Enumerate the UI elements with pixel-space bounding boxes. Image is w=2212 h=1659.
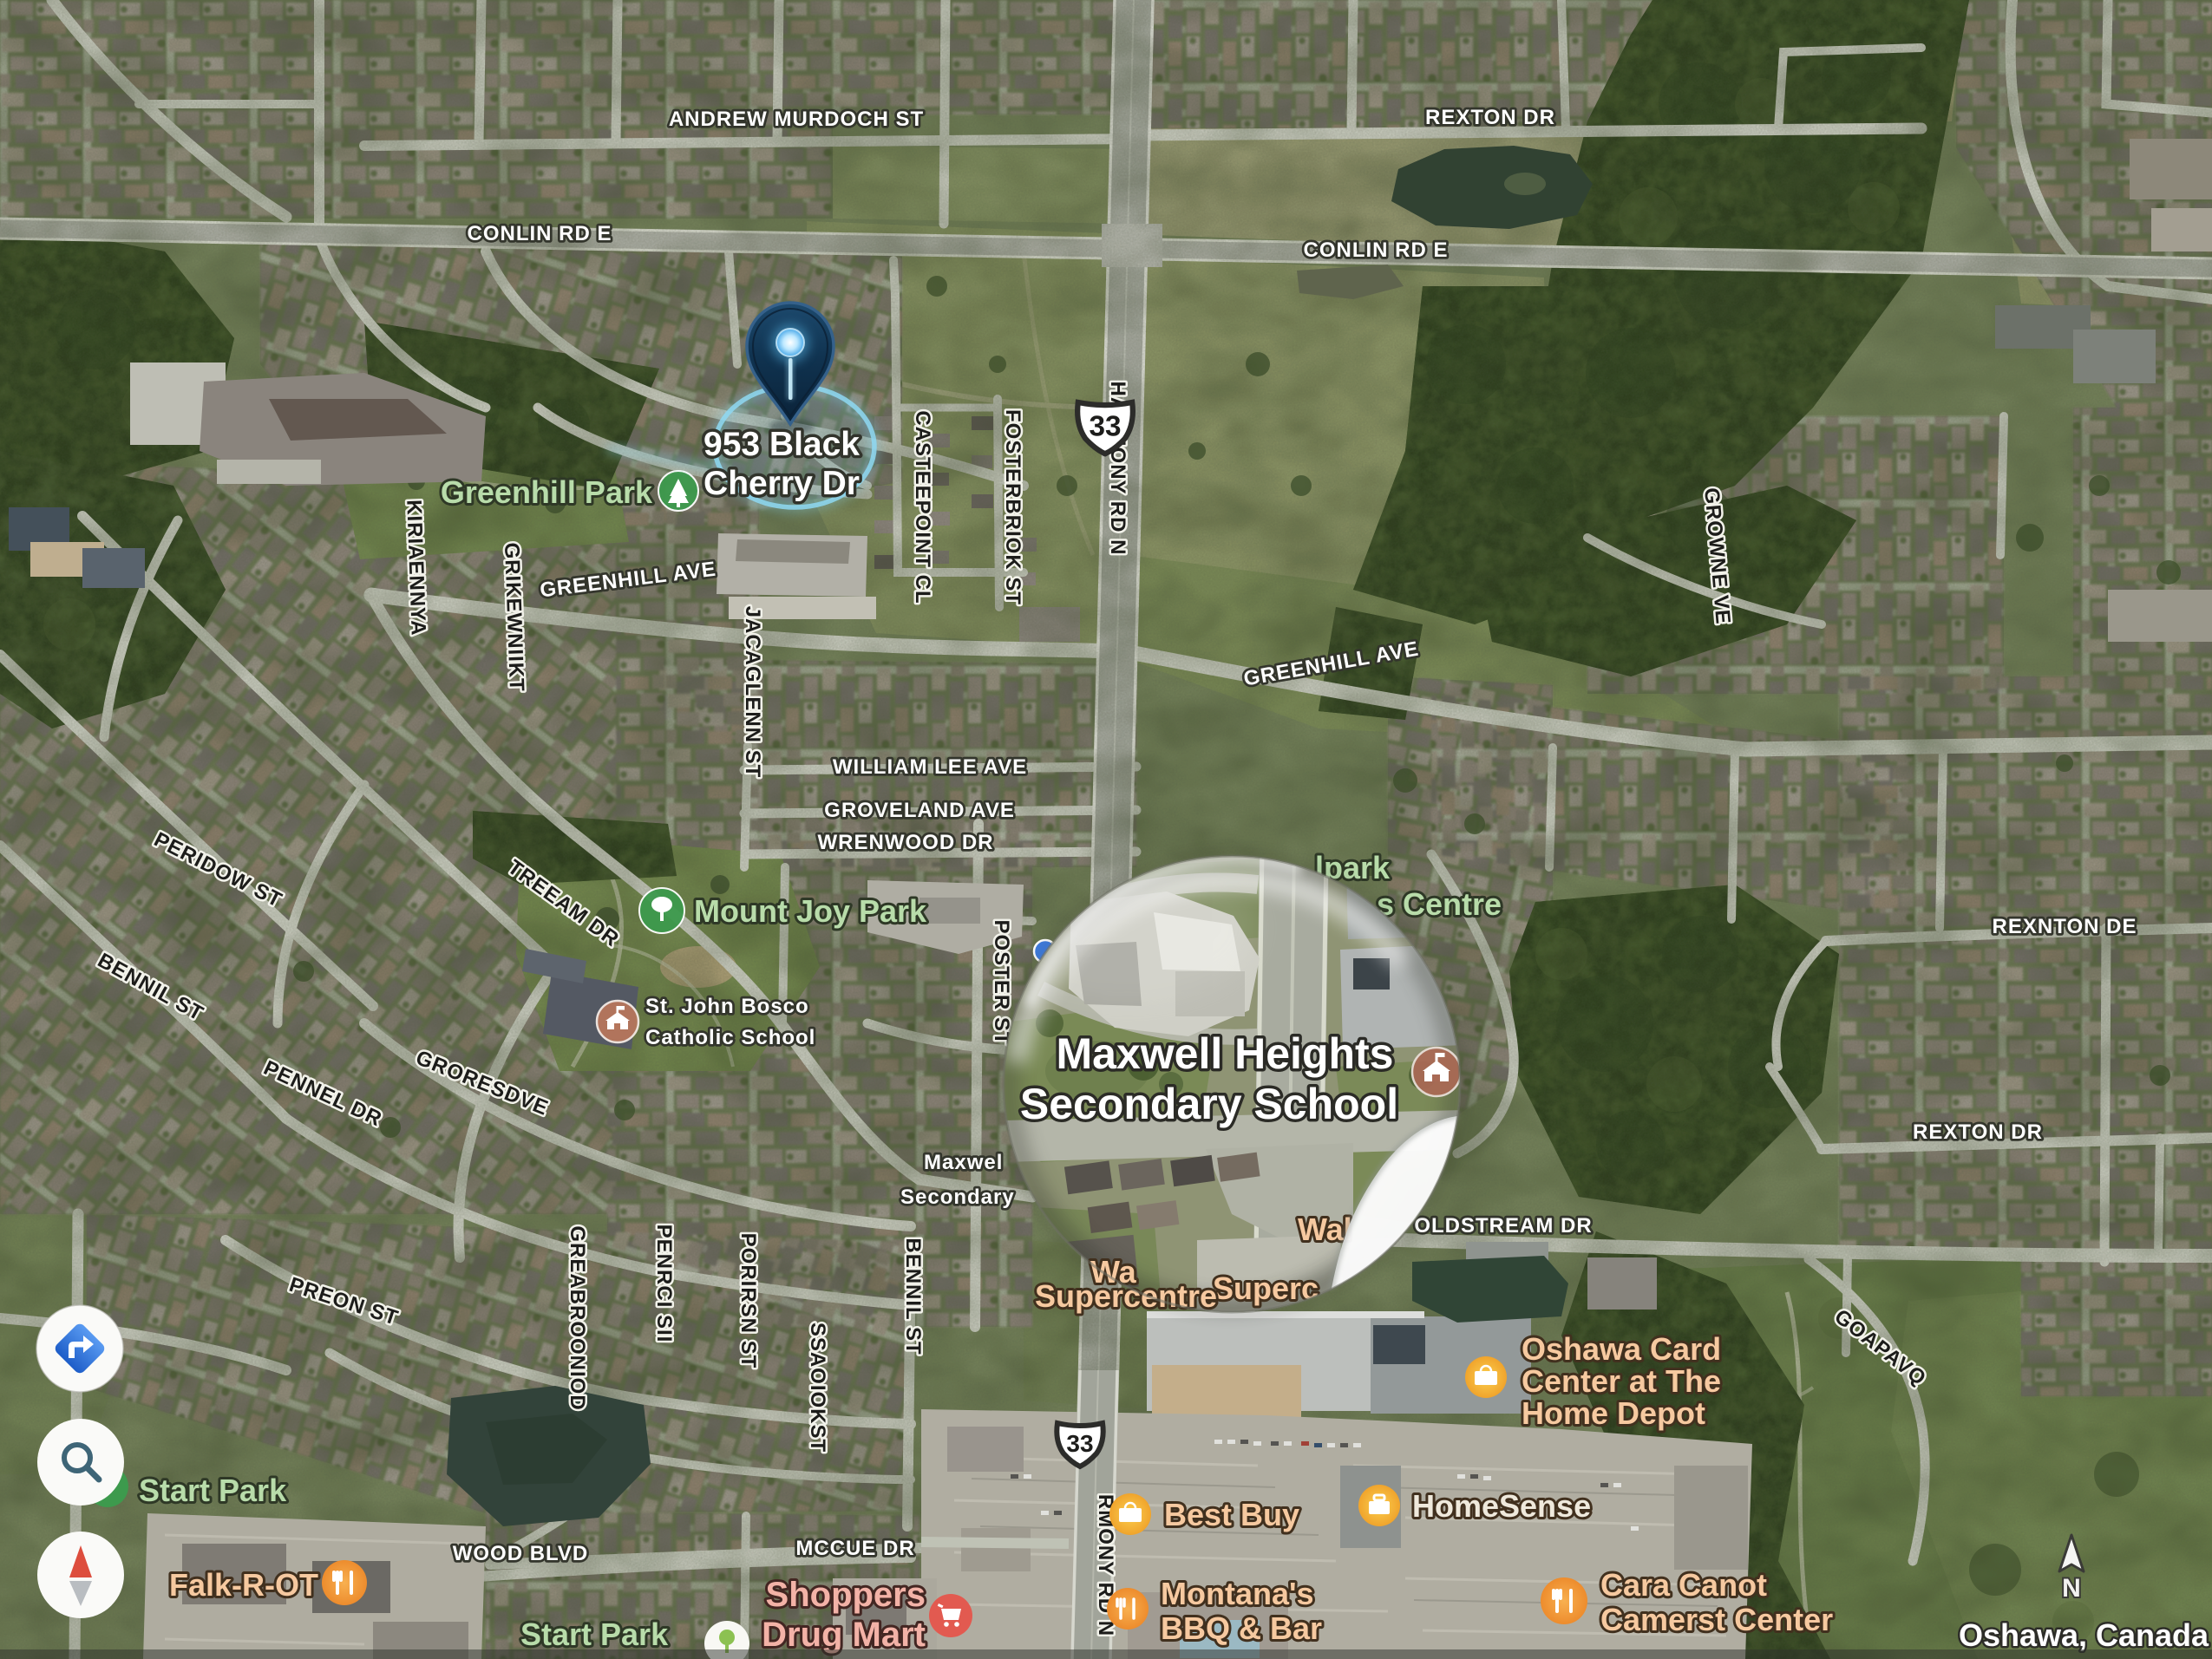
svg-text:33: 33 — [1089, 410, 1121, 442]
svg-text:CASTEEPOINT CL: CASTEEPOINT CL — [911, 410, 934, 604]
svg-text:Cara Canot: Cara Canot — [1600, 1567, 1767, 1603]
svg-text:Mount Joy Park: Mount Joy Park — [694, 893, 927, 929]
svg-text:Maxwel: Maxwel — [924, 1151, 1003, 1174]
svg-text:ANDREW MURDOCH ST: ANDREW MURDOCH ST — [669, 108, 924, 131]
svg-text:WOOD BLVD: WOOD BLVD — [453, 1542, 589, 1565]
svg-text:Secondary: Secondary — [900, 1185, 1015, 1209]
svg-text:REXTON DR: REXTON DR — [1425, 106, 1555, 129]
svg-text:Start Park: Start Park — [139, 1473, 287, 1508]
svg-text:Secondary School: Secondary School — [1020, 1080, 1398, 1128]
svg-text:Home Depot: Home Depot — [1522, 1395, 1705, 1431]
svg-text:GREABROONIOD: GREABROONIOD — [566, 1225, 589, 1410]
svg-text:Drug Mart: Drug Mart — [762, 1616, 926, 1654]
svg-text:Oshawa, Canada: Oshawa, Canada — [1959, 1617, 2209, 1653]
svg-text:JACAGLENN ST: JACAGLENN ST — [741, 606, 764, 779]
svg-text:St. John Bosco: St. John Bosco — [645, 995, 809, 1018]
svg-text:Maxwell Heights: Maxwell Heights — [1057, 1029, 1394, 1078]
svg-text:953 Black: 953 Black — [704, 426, 860, 463]
svg-text:Oshawa Card: Oshawa Card — [1522, 1331, 1721, 1367]
svg-text:HomeSense: HomeSense — [1412, 1488, 1591, 1524]
svg-text:CONLIN RD E: CONLIN RD E — [1304, 238, 1449, 262]
svg-text:33: 33 — [1066, 1430, 1093, 1457]
svg-text:Camerst Center: Camerst Center — [1600, 1602, 1833, 1637]
svg-text:WILLIAM LEE AVE: WILLIAM LEE AVE — [833, 755, 1027, 779]
svg-text:Falk-R-OT: Falk-R-OT — [169, 1567, 318, 1603]
svg-text:Catholic School: Catholic School — [645, 1026, 815, 1049]
svg-text:Shoppers: Shoppers — [766, 1576, 926, 1614]
svg-text:REXTON DR: REXTON DR — [1913, 1120, 2043, 1144]
svg-text:FOSTERBRIOK ST: FOSTERBRIOK ST — [1001, 409, 1024, 605]
svg-text:MCCUE DR: MCCUE DR — [795, 1537, 914, 1560]
svg-text:GROVELAND AVE: GROVELAND AVE — [824, 799, 1015, 822]
svg-text:WRENWOOD DR: WRENWOOD DR — [818, 831, 994, 854]
svg-text:Montana's: Montana's — [1161, 1576, 1314, 1611]
svg-text:PORIRSN ST: PORIRSN ST — [736, 1233, 760, 1369]
svg-text:SSAOIOKST: SSAOIOKST — [806, 1323, 829, 1453]
svg-text:CONLIN RD E: CONLIN RD E — [468, 222, 612, 245]
svg-text:N: N — [2062, 1574, 2081, 1603]
svg-text:KIRIAENNYA: KIRIAENNYA — [402, 500, 429, 637]
svg-text:Start Park: Start Park — [520, 1617, 669, 1652]
svg-text:REXNTON DE: REXNTON DE — [1993, 915, 2137, 938]
svg-text:BBQ & Bar: BBQ & Bar — [1161, 1610, 1322, 1646]
svg-text:BENNIL ST: BENNIL ST — [901, 1238, 925, 1355]
svg-text:Center at The: Center at The — [1522, 1363, 1721, 1399]
svg-text:Cherry Dr: Cherry Dr — [704, 465, 860, 502]
svg-text:PENRCI SII: PENRCI SII — [652, 1225, 676, 1343]
svg-text:Greenhill Park: Greenhill Park — [441, 474, 653, 510]
svg-text:Best Buy: Best Buy — [1164, 1497, 1299, 1532]
svg-text:OLDSTREAM DR: OLDSTREAM DR — [1414, 1214, 1592, 1238]
